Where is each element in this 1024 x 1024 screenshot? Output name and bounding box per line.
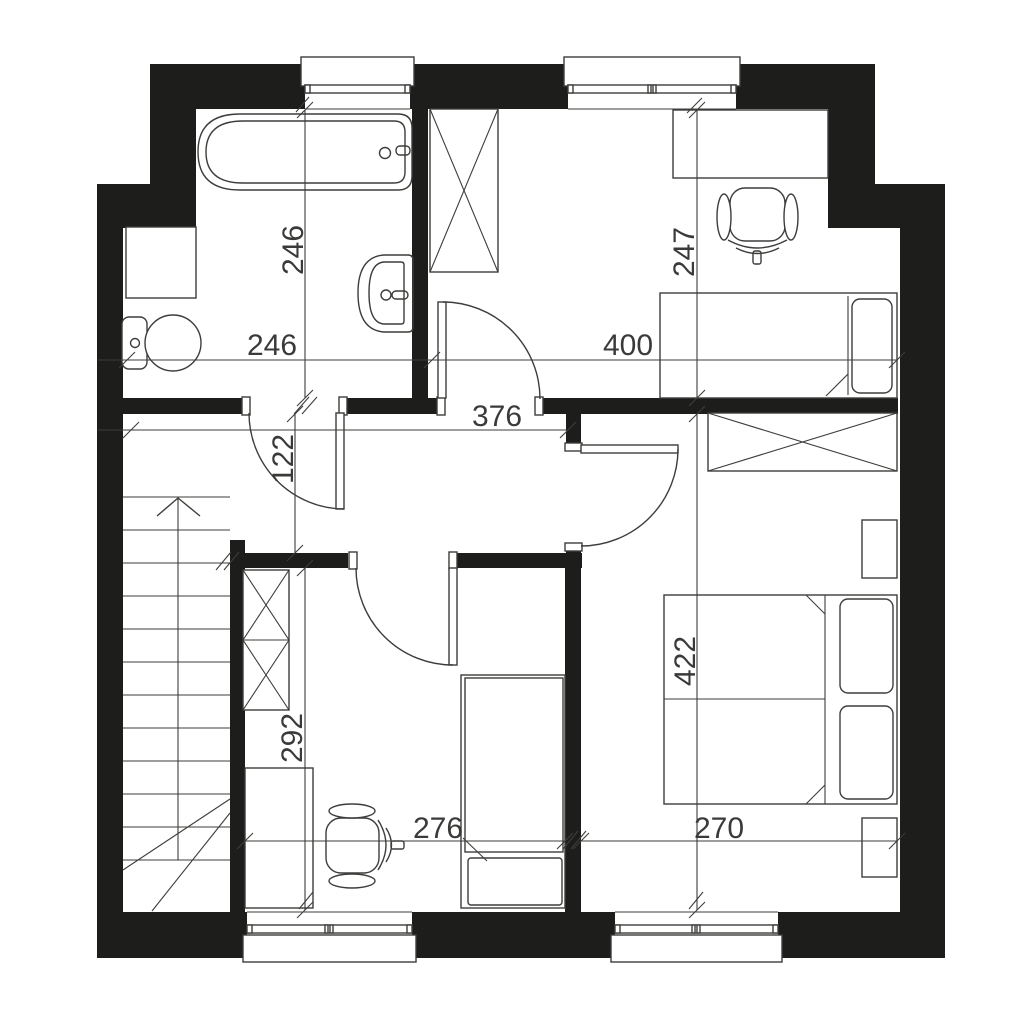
door-jamb-bedroom2-left xyxy=(349,552,357,569)
dim-label-bedroom3-width: 270 xyxy=(694,812,744,845)
dim-label-hallway-height: 122 xyxy=(267,434,300,484)
window-tick xyxy=(568,85,573,93)
window-tick xyxy=(697,925,700,933)
window-tick xyxy=(731,85,736,93)
desk-bedroom2 xyxy=(245,768,313,908)
nightstand-bottom-bedroom3 xyxy=(862,818,897,877)
door-jamb-bedroom3-top xyxy=(565,443,582,451)
dim-label-bathroom-width: 246 xyxy=(247,329,297,362)
door-leaf-bedroom3 xyxy=(581,445,678,453)
door-jamb-bedroom1-right xyxy=(535,397,543,415)
floor-plan-svg: 246400376276270246247122292422 xyxy=(0,0,1024,1024)
wall-break-mark xyxy=(302,397,317,414)
dim-label-bathroom-height: 246 xyxy=(277,225,310,275)
chair1-armrest-right xyxy=(784,194,798,240)
bathtub-faucet xyxy=(396,146,410,155)
bathtub-drain xyxy=(380,148,391,159)
window-tick xyxy=(615,925,620,933)
window-tick xyxy=(773,925,778,933)
door-jamb-bedroom2-right xyxy=(449,552,457,569)
desk-chair-stem-bedroom2 xyxy=(391,841,404,849)
window-tick xyxy=(330,925,333,933)
wall-break-mark xyxy=(294,397,309,414)
wall-top-middle xyxy=(410,64,568,109)
stair-break-line xyxy=(123,799,230,870)
bed-pillow-bedroom1 xyxy=(852,299,892,393)
window-tick xyxy=(692,925,695,933)
door-jamb-bathroom-right xyxy=(339,397,347,415)
wall-right-lower xyxy=(900,228,945,958)
window-frame-bedroom1 xyxy=(568,85,736,93)
door-arc-bedroom1 xyxy=(443,302,540,399)
toilet-flush-button xyxy=(131,339,140,348)
desk-bedroom1 xyxy=(673,110,828,178)
wall-left-step xyxy=(97,184,196,228)
nightstand-top-bedroom3 xyxy=(862,520,897,578)
window-tick xyxy=(305,85,310,93)
wall-hallway-c xyxy=(535,398,898,414)
sink-faucet xyxy=(392,291,408,299)
dim-label-bedroom2-width: 276 xyxy=(413,812,463,845)
wall-bottom-left xyxy=(97,912,247,958)
wall-right-upper xyxy=(828,109,875,228)
wall-hallway-b xyxy=(343,398,445,414)
double-bed-pillow-top xyxy=(840,599,893,693)
double-bed-pillow-bottom xyxy=(840,706,893,799)
door-leaf-bedroom2 xyxy=(449,568,457,665)
door-arc-bedroom3 xyxy=(581,449,678,546)
washing-machine xyxy=(126,227,196,298)
dim-label-bedroom2-height: 292 xyxy=(276,713,309,763)
window-tick xyxy=(405,85,410,93)
bed-mattress-bedroom2 xyxy=(465,678,563,852)
toilet-bowl xyxy=(145,315,201,371)
window-sill-bathroom xyxy=(301,57,414,86)
window-sill-bedroom1 xyxy=(564,57,740,86)
dim-label-hallway-width: 376 xyxy=(472,400,522,433)
wall-break-mark xyxy=(216,552,231,570)
sink-drain xyxy=(381,290,391,300)
door-leaf-bedroom1 xyxy=(438,302,446,398)
window-sill-bedroom3 xyxy=(611,935,782,962)
wall-bedroom3-stub xyxy=(566,398,581,445)
stair-break-line xyxy=(152,813,230,911)
desk-chair-seat-bedroom1 xyxy=(730,188,785,241)
desk-chair-seat-bedroom2 xyxy=(326,818,379,873)
chair2-armrest-top xyxy=(329,804,375,818)
window-tick xyxy=(247,925,252,933)
wall-bedroom2-bedroom3 xyxy=(565,568,581,912)
window-tick xyxy=(653,85,656,93)
dim-label-bedroom1-height: 247 xyxy=(668,227,701,277)
window-tick xyxy=(325,925,328,933)
door-leaf-bathroom xyxy=(336,413,344,509)
door-jamb-bathroom-left xyxy=(242,397,250,415)
window-tick xyxy=(648,85,651,93)
wall-hallway-a xyxy=(123,398,248,414)
wall-bottom-middle xyxy=(412,912,615,958)
dim-label-bedroom3-height: 422 xyxy=(669,636,702,686)
chair2-armrest-bottom xyxy=(329,874,375,888)
door-jamb-bedroom3-bottom xyxy=(565,543,582,551)
bed-pillow-bedroom2 xyxy=(468,858,562,905)
door-arc-bedroom2 xyxy=(356,568,453,665)
window-frame-bathroom xyxy=(305,85,410,93)
dim-label-bedroom1-width: 400 xyxy=(603,329,653,362)
wall-bedroom2-top-b xyxy=(457,553,582,568)
window-sill-bedroom2 xyxy=(243,935,416,962)
wall-bathroom-bedroom1 xyxy=(412,109,428,399)
wall-left-upper xyxy=(150,64,196,184)
wall-left-lower xyxy=(97,228,123,958)
wall-right-step xyxy=(875,184,945,228)
door-jamb-bedroom1-left xyxy=(437,397,445,415)
floor-plan-canvas: 246400376276270246247122292422 xyxy=(0,0,1024,1024)
chair1-armrest-left xyxy=(717,194,731,240)
wall-top-right xyxy=(736,64,875,109)
window-tick xyxy=(407,925,412,933)
wall-bedroom2-top-a xyxy=(230,553,348,568)
